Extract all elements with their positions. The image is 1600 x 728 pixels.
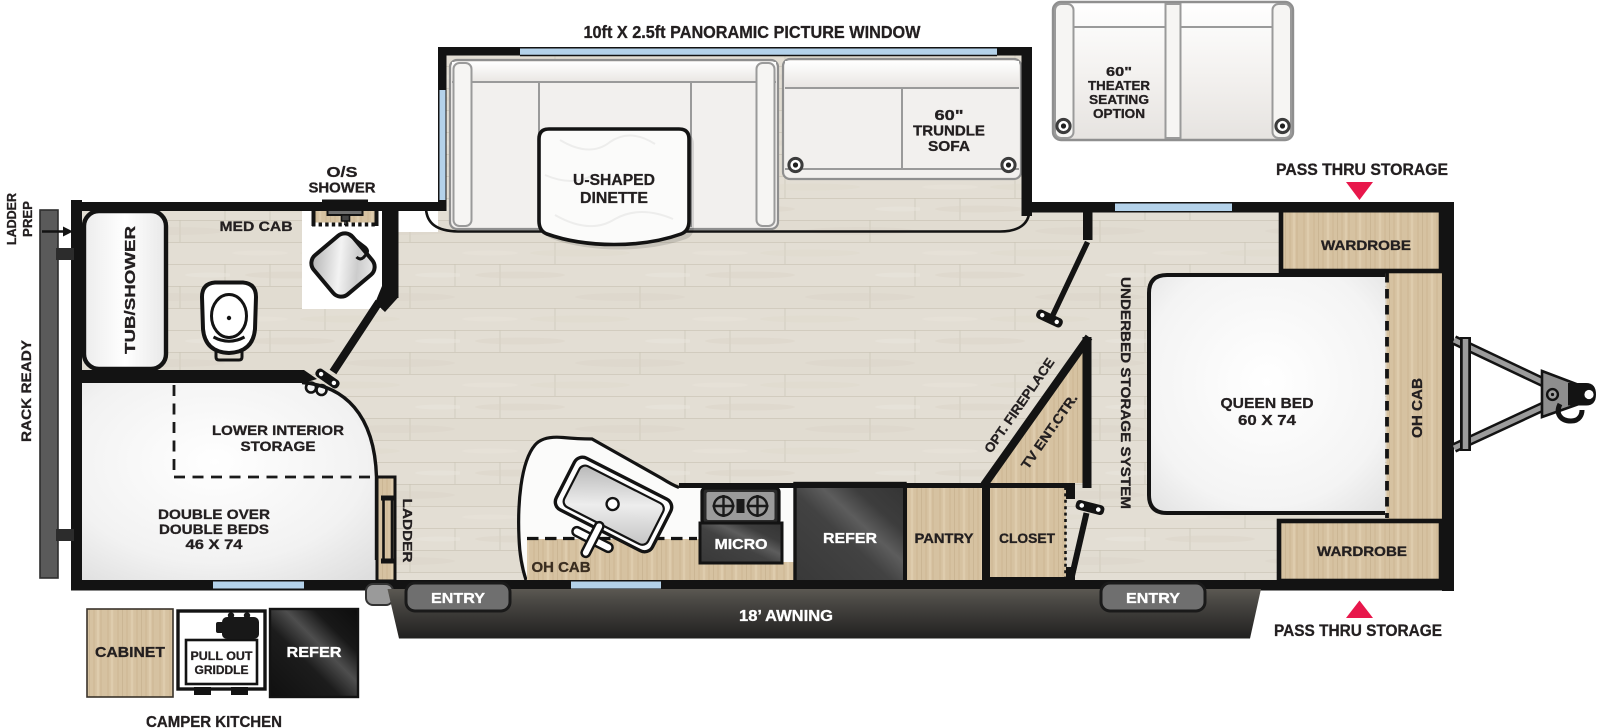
svg-text:CABINET: CABINET [95,645,165,661]
svg-text:MED CAB: MED CAB [220,219,293,235]
svg-text:SHOWER: SHOWER [309,181,376,197]
svg-text:DOUBLE BEDS: DOUBLE BEDS [159,522,269,537]
svg-text:10ft X 2.5ft PANORAMIC PICTURE: 10ft X 2.5ft PANORAMIC PICTURE WINDOW [584,22,922,42]
svg-text:PREP: PREP [21,201,35,237]
svg-text:60": 60" [1106,65,1132,79]
svg-text:LOWER INTERIOR: LOWER INTERIOR [212,423,344,438]
svg-text:MICRO: MICRO [715,537,768,553]
svg-text:REFER: REFER [823,531,878,547]
svg-text:QUEEN BED: QUEEN BED [1221,395,1314,412]
svg-text:CAMPER KITCHEN: CAMPER KITCHEN [146,714,282,728]
svg-text:WARDROBE: WARDROBE [1317,543,1407,559]
svg-text:PULL OUT: PULL OUT [191,649,254,663]
svg-text:LADDER: LADDER [5,193,19,245]
svg-text:U-SHAPED: U-SHAPED [573,172,655,189]
svg-text:GRIDDLE: GRIDDLE [195,663,249,677]
svg-text:UNDERBED STORAGE SYSTEM: UNDERBED STORAGE SYSTEM [1117,277,1133,509]
svg-text:46 X 74: 46 X 74 [186,537,243,552]
svg-text:TRUNDLE: TRUNDLE [913,124,985,140]
svg-text:SEATING: SEATING [1089,93,1149,107]
svg-text:SOFA: SOFA [928,139,970,155]
svg-text:60 X 74: 60 X 74 [1238,412,1297,429]
svg-text:DINETTE: DINETTE [580,190,648,207]
svg-text:LADDER: LADDER [400,499,415,564]
svg-text:PASS THRU STORAGE: PASS THRU STORAGE [1276,161,1448,179]
svg-text:RACK READY: RACK READY [19,339,35,442]
svg-text:PASS THRU STORAGE: PASS THRU STORAGE [1274,622,1442,640]
svg-text:ENTRY: ENTRY [1126,590,1180,607]
svg-text:OH CAB: OH CAB [532,560,591,576]
svg-text:THEATER: THEATER [1088,79,1150,93]
svg-text:OH CAB: OH CAB [1409,378,1426,438]
svg-text:REFER: REFER [287,645,343,661]
svg-text:60": 60" [935,108,964,124]
svg-text:DOUBLE OVER: DOUBLE OVER [158,507,270,522]
svg-text:TUB/SHOWER: TUB/SHOWER [123,226,139,354]
svg-text:O/S: O/S [327,165,358,181]
svg-text:OPTION: OPTION [1093,107,1145,121]
svg-text:PANTRY: PANTRY [915,530,975,546]
svg-text:ENTRY: ENTRY [431,590,485,607]
svg-text:STORAGE: STORAGE [241,439,316,454]
svg-text:WARDROBE: WARDROBE [1321,237,1411,253]
svg-text:18’ AWNING: 18’ AWNING [739,608,833,625]
svg-text:CLOSET: CLOSET [999,530,1055,546]
